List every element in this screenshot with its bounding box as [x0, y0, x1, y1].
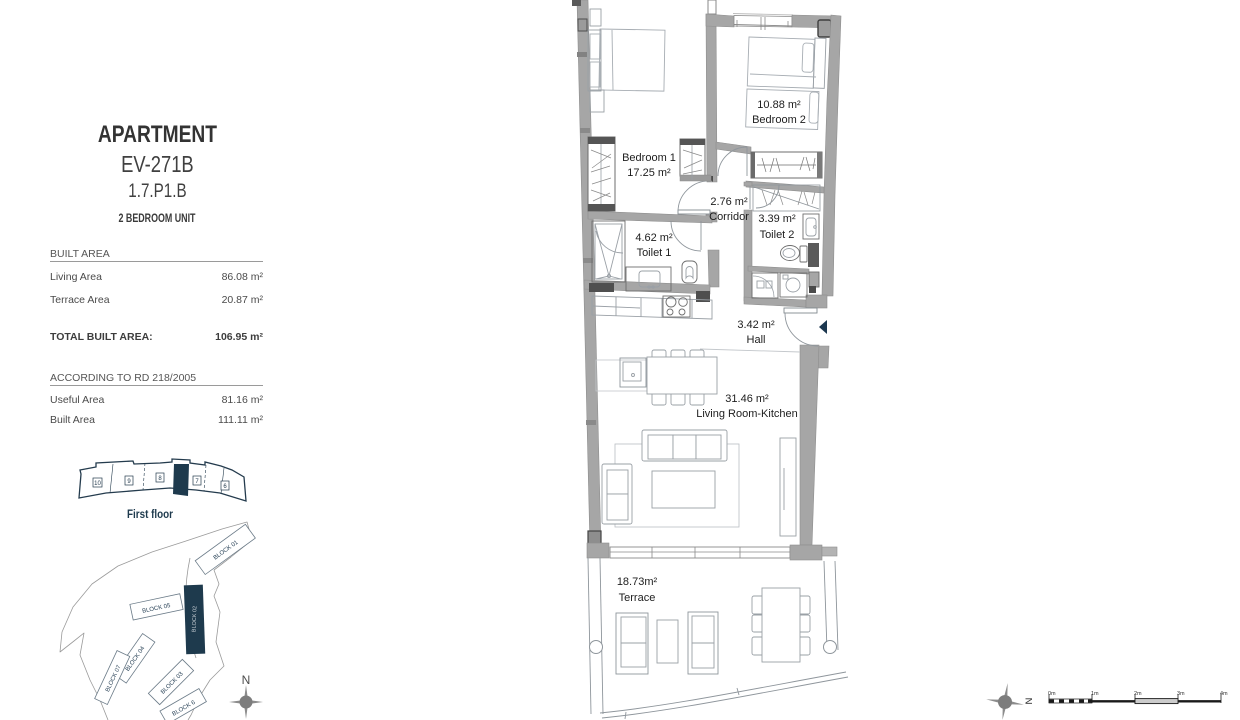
svg-text:10: 10 [94, 481, 101, 487]
svg-text:3.42 m²: 3.42 m² [737, 319, 775, 331]
svg-text:Toilet 2: Toilet 2 [760, 229, 795, 241]
svg-text:Terrace: Terrace [619, 592, 656, 604]
svg-text:4m: 4m [1220, 691, 1228, 697]
svg-text:17.25 m²: 17.25 m² [627, 167, 671, 179]
svg-text:0m: 0m [1048, 691, 1056, 697]
svg-text:N: N [242, 673, 251, 687]
svg-text:18.73m²: 18.73m² [617, 576, 658, 588]
svg-text:1m: 1m [1091, 691, 1099, 697]
svg-text:Toilet 1: Toilet 1 [637, 247, 672, 259]
svg-text:First floor: First floor [127, 509, 173, 521]
svg-text:BLOCK 02: BLOCK 02 [192, 606, 199, 632]
svg-text:2.76 m²: 2.76 m² [710, 196, 748, 208]
svg-text:4.62 m²: 4.62 m² [635, 232, 673, 244]
svg-text:3m: 3m [1177, 691, 1185, 697]
svg-text:Bedroom 1: Bedroom 1 [622, 152, 676, 164]
svg-text:10.88 m²: 10.88 m² [757, 99, 801, 111]
svg-text:Living Room-Kitchen: Living Room-Kitchen [696, 408, 798, 420]
svg-text:3.39 m²: 3.39 m² [758, 213, 796, 225]
svg-text:31.46 m²: 31.46 m² [725, 393, 769, 405]
svg-text:N: N [1022, 698, 1033, 705]
svg-text:Bedroom 2: Bedroom 2 [752, 114, 806, 126]
svg-text:Corridor: Corridor [709, 211, 749, 223]
svg-text:2m: 2m [1134, 691, 1142, 697]
svg-text:Hall: Hall [747, 334, 766, 346]
